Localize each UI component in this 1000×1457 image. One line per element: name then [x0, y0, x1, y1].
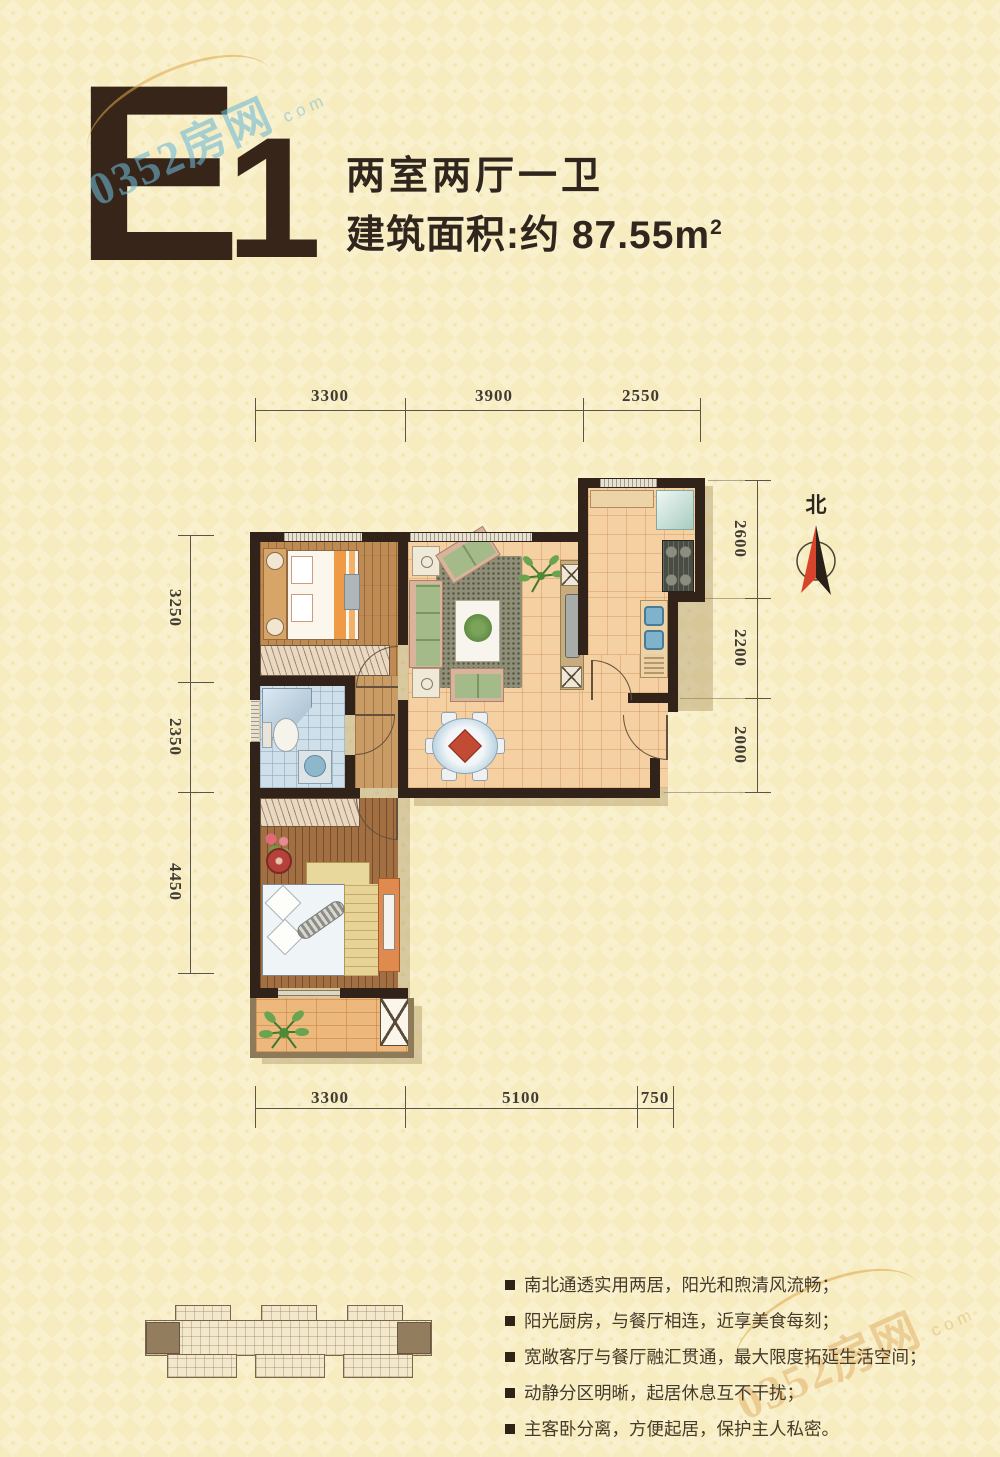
dimension-extension-line: [708, 480, 748, 481]
area-sup: 2: [710, 216, 723, 239]
balcony-wall: [250, 1052, 414, 1058]
table-plant-icon: [464, 614, 492, 642]
wall-segment: [398, 700, 408, 798]
feature-item: 南北通透实用两居，阳光和煦清风流畅；: [505, 1272, 985, 1297]
feature-text: 主客卧分离，方便起居，保护主人私密。: [524, 1416, 839, 1441]
stove: [662, 540, 694, 592]
pillow: [291, 556, 313, 584]
dimension-label: 2000: [732, 705, 750, 785]
bullet-square-icon: [505, 1316, 515, 1326]
features-list: 南北通透实用两居，阳光和煦清风流畅； 阳光厨房，与餐厅相连，近享美食每刻； 宽敞…: [505, 1272, 985, 1441]
wardrobe-master: [260, 798, 360, 827]
area-text: 建筑面积:约 87.55m: [346, 214, 710, 257]
building-key-plan: [145, 1305, 432, 1380]
bullet-square-icon: [505, 1352, 515, 1362]
dimension-tick: [178, 682, 214, 683]
dimension-tick: [255, 398, 256, 442]
bed-shelf: [306, 862, 370, 886]
door-leaf: [396, 798, 398, 840]
compass: 北: [781, 489, 851, 606]
end-table-lamp: [412, 546, 440, 576]
wall-segment: [398, 532, 408, 645]
lamp-icon: [421, 678, 433, 690]
window-marker: [284, 533, 362, 541]
bullet-square-icon: [505, 1280, 515, 1290]
pillow: [291, 594, 313, 622]
dimension-label: 3300: [290, 1088, 370, 1106]
bed-frame: [344, 884, 378, 976]
wall-segment: [628, 693, 678, 703]
nightstand-lamp: [266, 552, 284, 570]
sofa-cushions: [455, 674, 501, 698]
balcony-wall: [250, 998, 256, 1058]
dimension-tick: [405, 398, 406, 442]
wall-segment: [250, 742, 260, 998]
dimension-tick: [700, 398, 701, 442]
dimension-tick: [255, 1086, 256, 1128]
dimension-tick: [583, 398, 584, 442]
dimension-tick: [745, 792, 771, 793]
dimension-line: [757, 480, 758, 792]
wall-segment: [250, 532, 260, 700]
wall-segment: [250, 988, 278, 998]
window-marker: [251, 700, 259, 742]
layout-type-title: 两室两厅一卫: [346, 156, 604, 199]
dimension-label: 2350: [167, 697, 185, 777]
wall-segment: [400, 788, 660, 798]
sofa-armchair: [450, 668, 504, 702]
dimension-extension-line: [664, 792, 748, 793]
dimension-line: [190, 535, 191, 973]
dimension-tick: [745, 480, 771, 481]
round-stool: [266, 848, 292, 874]
window-marker: [600, 479, 657, 487]
feature-text: 南北通透实用两居，阳光和煦清风流畅；: [524, 1272, 839, 1297]
key-plan-highlight-unit: [397, 1322, 431, 1354]
feature-item: 动静分区明晰，起居休息互不干扰；: [505, 1380, 985, 1405]
dimension-tick: [178, 973, 214, 974]
sink-bowl: [644, 630, 664, 650]
refrigerator: [656, 490, 694, 530]
sink-bowl: [644, 606, 664, 626]
feature-text: 宽敞客厅与餐厅融汇贯通，最大限度拓延生活空间；: [524, 1344, 927, 1369]
shaft-x-box: [380, 998, 410, 1046]
key-plan-body: [145, 1320, 432, 1356]
dimension-label: 3300: [290, 386, 370, 404]
sofa-cushions: [416, 584, 440, 666]
compass-needle-icon: [781, 521, 851, 601]
area-label: 建筑面积:约 87.55m2: [346, 215, 723, 258]
balcony-wall: [408, 998, 414, 1058]
wall-segment: [345, 676, 355, 715]
wall-segment: [340, 988, 408, 998]
bedside-mat: [344, 574, 360, 610]
feature-item: 主客卧分离，方便起居，保护主人私密。: [505, 1416, 985, 1441]
wall-segment: [250, 676, 355, 686]
tv-master: [383, 894, 395, 950]
wall-segment: [345, 755, 355, 788]
toilet-tank: [262, 722, 272, 748]
unit-letter: E: [74, 48, 236, 300]
dimension-label: 3250: [167, 568, 185, 648]
compass-north-label: 北: [781, 489, 851, 519]
drain-board: [644, 654, 664, 674]
door-leaf: [355, 714, 395, 716]
dimension-label: 3900: [454, 386, 534, 404]
dimension-label: 750: [615, 1088, 695, 1106]
unit-number: 1: [226, 112, 322, 284]
wash-basin: [304, 755, 326, 777]
key-plan-wing: [255, 1354, 325, 1378]
key-plan-wing: [167, 1354, 237, 1378]
dimension-label: 2200: [732, 608, 750, 688]
bullet-square-icon: [505, 1388, 515, 1398]
dimension-tick: [745, 698, 771, 699]
sliding-door: [278, 990, 340, 996]
dimension-label: 4450: [167, 842, 185, 922]
door-leaf: [591, 660, 593, 700]
plant-icon: [258, 1002, 310, 1054]
feature-text: 阳光厨房，与餐厅相连，近享美食每刻；: [524, 1308, 839, 1333]
dimension-tick: [745, 598, 771, 599]
dimension-label: 2550: [601, 386, 681, 404]
end-table-lamp: [412, 668, 440, 698]
dimension-label: 5100: [481, 1088, 561, 1106]
wall-segment: [695, 478, 705, 602]
dimension-tick: [178, 535, 214, 536]
dimension-label: 2600: [732, 499, 750, 579]
plant-icon: [518, 548, 564, 598]
sofa-two-seat: [409, 580, 443, 668]
dimension-tick: [405, 1086, 406, 1128]
feature-item: 宽敞客厅与餐厅融汇贯通，最大限度拓延生活空间；: [505, 1344, 985, 1369]
bullet-square-icon: [505, 1424, 515, 1434]
feature-text: 动静分区明晰，起居休息互不干扰；: [524, 1380, 804, 1405]
dimension-line: [255, 410, 700, 411]
floorplan-page: { "header": { "unit_letter": "E", "unit_…: [0, 0, 1000, 1457]
toilet: [273, 718, 299, 752]
nightstand-lamp: [266, 618, 284, 636]
door-leaf: [356, 686, 398, 688]
kitchen-counter: [590, 490, 654, 508]
dimension-tick: [178, 792, 214, 793]
lamp-icon: [421, 556, 433, 568]
window-marker: [410, 533, 532, 541]
speaker-box: [561, 666, 582, 688]
wall-segment: [578, 542, 588, 655]
key-plan-wing: [343, 1354, 413, 1378]
wall-segment: [250, 788, 360, 798]
key-plan-highlight-unit: [146, 1322, 180, 1354]
door-leaf: [666, 715, 668, 760]
feature-item: 阳光厨房，与餐厅相连，近享美食每刻；: [505, 1308, 985, 1333]
dimension-line: [255, 1108, 673, 1109]
